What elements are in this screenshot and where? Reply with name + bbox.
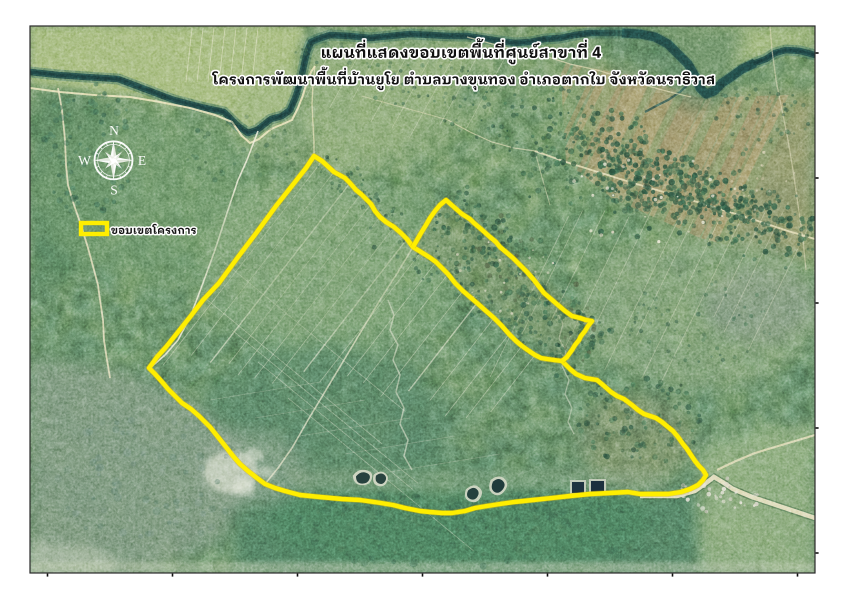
svg-text:W: W bbox=[78, 153, 91, 168]
svg-text:S: S bbox=[110, 182, 118, 197]
svg-text:E: E bbox=[138, 153, 146, 168]
svg-text:N: N bbox=[109, 123, 119, 138]
